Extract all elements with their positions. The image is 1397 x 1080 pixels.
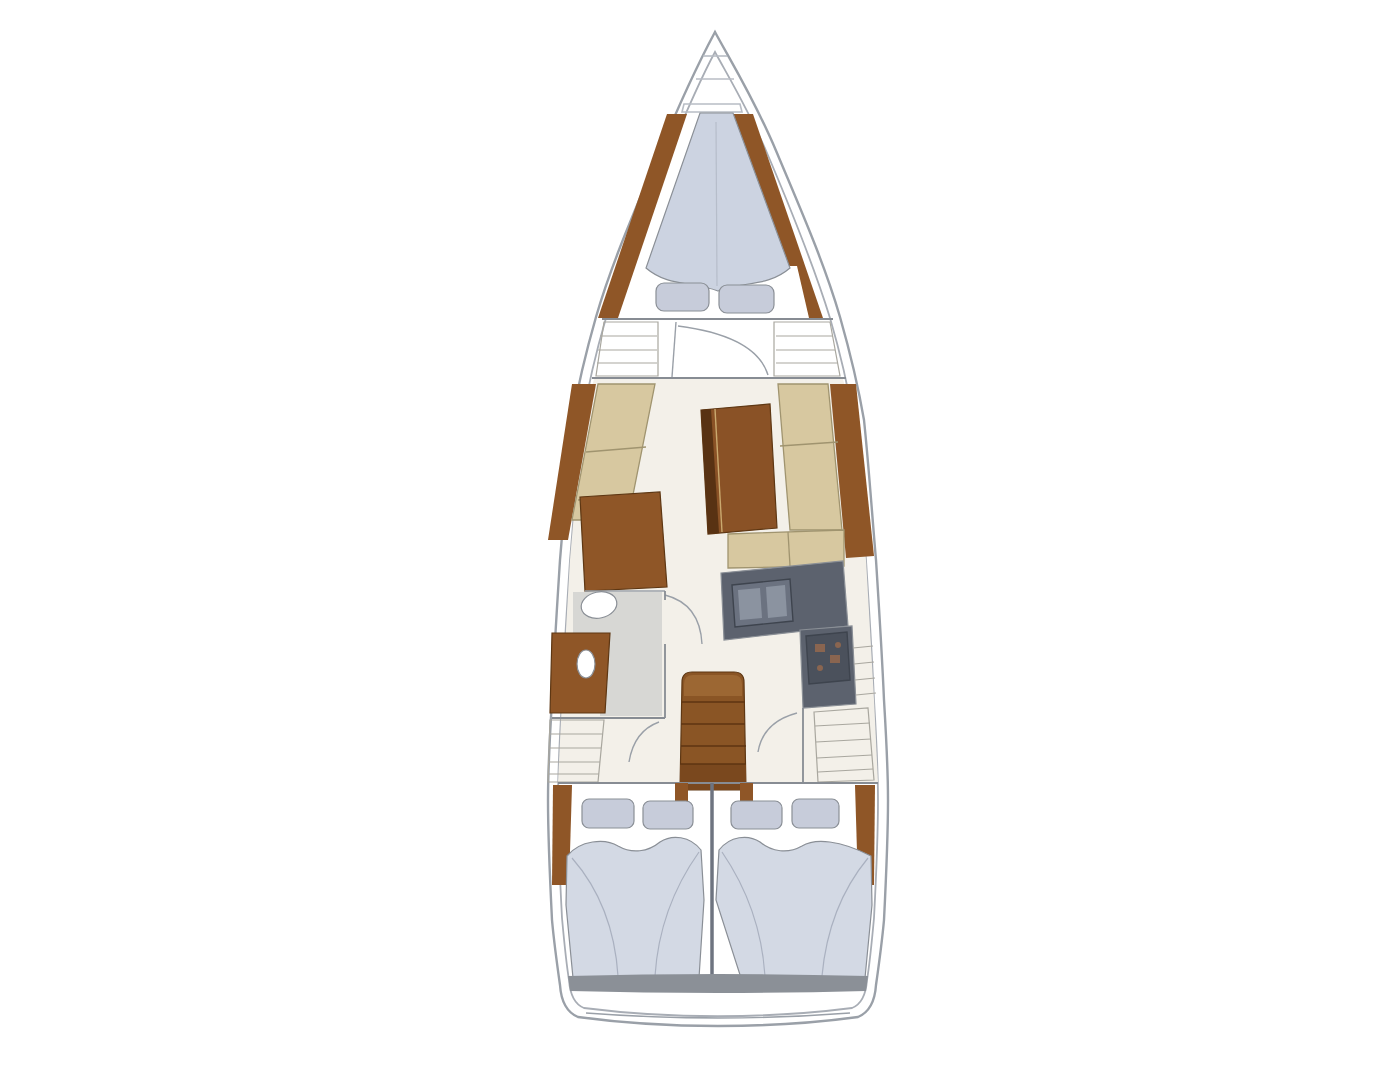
- yacht-floorplan-canvas: [0, 0, 1397, 1080]
- aft-pillow-port-inner: [643, 801, 693, 829]
- companionway-stairs-top: [684, 675, 742, 696]
- aft-pillow-starboard-inner: [731, 801, 782, 829]
- vberth-pillow-left: [656, 283, 709, 311]
- galley-stove: [806, 632, 850, 684]
- aft-threshold-starboard: [740, 783, 753, 802]
- aft-pillow-port-outer: [582, 799, 634, 828]
- aft-threshold-port: [675, 783, 688, 802]
- aft-bed-port: [566, 837, 704, 978]
- chart-table: [580, 492, 667, 591]
- yacht-floorplan-figure: [0, 0, 1397, 1080]
- aft-bed-starboard: [716, 837, 872, 978]
- galley-sink-basin-left: [738, 588, 762, 620]
- head-toilet: [577, 650, 595, 678]
- galley-sink-basin-right: [766, 585, 787, 618]
- vberth-pillow-right: [719, 285, 774, 313]
- aft-pillow-starboard-outer: [792, 799, 839, 828]
- transom-band: [568, 974, 868, 993]
